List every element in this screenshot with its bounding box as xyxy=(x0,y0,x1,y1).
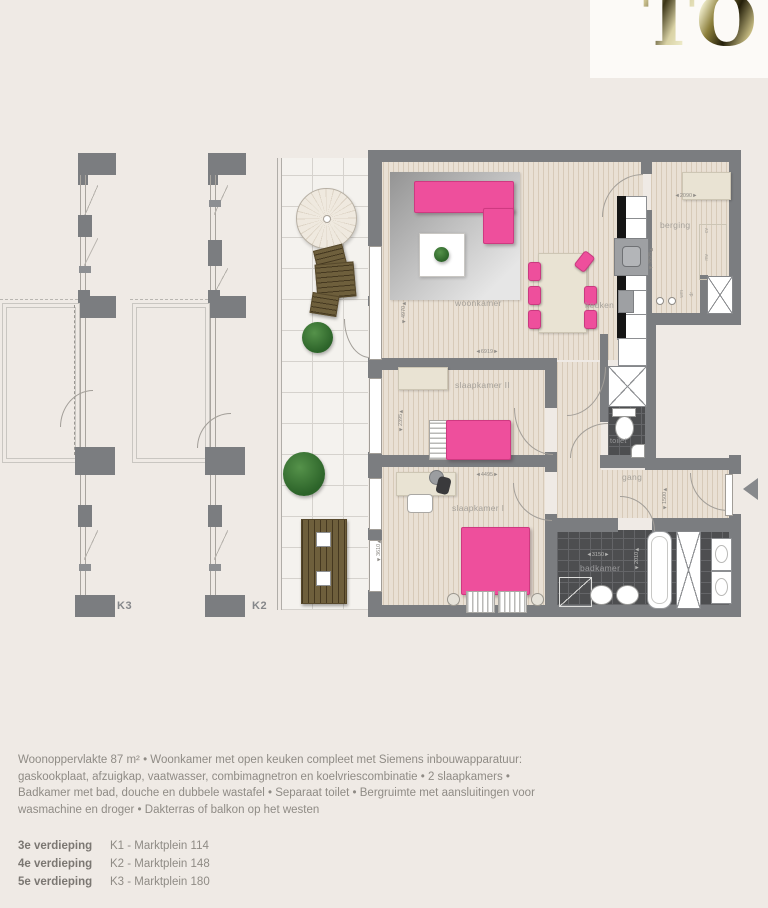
wall-vertical-a xyxy=(545,358,557,408)
logo-panel: TO xyxy=(590,0,768,78)
bathroom-cabinet xyxy=(676,531,701,609)
wall-right-mid-a xyxy=(729,455,741,474)
terrace-chair xyxy=(310,292,340,317)
k2-mid-wall-b xyxy=(220,296,246,318)
wall-left-a xyxy=(368,150,382,246)
dim-slaapkamer2-h: 2395 xyxy=(398,400,404,440)
k3-window-tick xyxy=(79,266,91,273)
k2-window-sill xyxy=(208,505,222,527)
k3-label: K3 xyxy=(117,600,132,612)
dining-chair xyxy=(528,310,541,329)
k3-window-flag xyxy=(84,238,98,266)
dim-slaapkamer1-w: 4495 xyxy=(462,472,512,478)
toilet-column-cabinet xyxy=(618,338,647,366)
k3-terrace-outline xyxy=(2,303,80,463)
k2-dashed-line-top xyxy=(130,299,208,302)
wall-top xyxy=(368,150,741,162)
berging-shaft xyxy=(707,276,733,314)
bathtub-inner xyxy=(651,536,668,604)
dim-berging-w: 2090 xyxy=(666,193,706,199)
dining-chair xyxy=(584,310,597,329)
wall-left-d xyxy=(368,590,382,617)
slaapkamer1-label: slaapkamer I xyxy=(452,503,504,513)
dim-gang-w: 1500 xyxy=(662,480,668,516)
vanity-bowl xyxy=(715,545,728,563)
nightstand xyxy=(531,593,544,606)
wall-left-b xyxy=(368,358,382,378)
k3-window-sill xyxy=(78,505,92,527)
floor-label: 3e verdieping xyxy=(18,840,110,852)
cv-label: cv xyxy=(704,228,710,233)
window-slaapkamer1-a xyxy=(369,478,382,530)
dining-chair xyxy=(528,262,541,281)
shower xyxy=(559,577,592,607)
wall-gang-north xyxy=(645,458,741,470)
k2-bottom-corner-wall xyxy=(205,595,245,617)
washbasin xyxy=(590,585,613,605)
slaapkamer2-label: slaapkamer II xyxy=(455,380,510,390)
vanity-bowl xyxy=(715,578,728,596)
bed1-pillow xyxy=(466,591,495,613)
k3-window-flag xyxy=(84,530,98,560)
k3-window-tick xyxy=(79,564,91,571)
dim-woonkamer-w: 6919 xyxy=(462,349,512,355)
floor-unit: K2 - Marktplein 148 xyxy=(110,858,210,870)
bench-tray xyxy=(316,571,331,586)
dr-label: dr xyxy=(689,292,695,296)
k3-window-sill xyxy=(78,215,92,237)
dim-badkamer-w: 3150 xyxy=(578,552,618,558)
floor-row: 4e verdiepingK2 - Marktplein 148 xyxy=(18,858,210,870)
entry-door-leaf xyxy=(725,474,733,516)
floor-row: 5e verdiepingK3 - Marktplein 180 xyxy=(18,876,210,888)
table-plant xyxy=(434,247,449,262)
stool xyxy=(407,494,433,513)
wall-berging-bottom xyxy=(648,313,741,325)
kitchen-sink xyxy=(622,246,641,267)
toilet-bowl xyxy=(615,416,634,440)
wall-vertical-c xyxy=(545,514,557,605)
woonkamer-label: woonkamer xyxy=(455,298,502,308)
mv-label: mv xyxy=(704,254,710,261)
dining-chair xyxy=(528,286,541,305)
wall-left-c xyxy=(368,452,382,478)
wasmachine-connection xyxy=(656,297,664,305)
floor-unit: K1 - Marktplein 114 xyxy=(110,840,209,852)
k3-lower-corner-wall xyxy=(75,447,115,475)
floor-row: 3e verdiepingK1 - Marktplein 114 xyxy=(18,840,209,852)
window-woonkamer xyxy=(369,246,382,360)
k2-window-sill xyxy=(208,240,222,266)
k2-top-corner-wall xyxy=(208,153,246,175)
nightstand xyxy=(447,593,460,606)
badkamer-label: badkamer xyxy=(580,563,620,573)
dim-badkamer-h: 2010 xyxy=(634,540,640,576)
bed1 xyxy=(461,527,530,595)
k2-window-tick xyxy=(209,564,221,571)
plant-bush xyxy=(283,452,325,496)
dim-slaapkamer1-h: 3610 xyxy=(376,528,382,572)
bench-tray xyxy=(316,532,331,547)
washbasin xyxy=(616,585,639,605)
k3-window-flag xyxy=(84,185,98,217)
k2-window-flag xyxy=(214,530,228,560)
floor-unit: K3 - Marktplein 180 xyxy=(110,876,210,888)
k3-mid-wall-b xyxy=(90,296,116,318)
parasol-pole xyxy=(323,215,331,223)
k2-label: K2 xyxy=(252,600,267,612)
floor-label: 4e verdieping xyxy=(18,858,110,870)
terrace-railing xyxy=(277,158,282,610)
k2-window-tick xyxy=(209,200,221,207)
entrance-arrow-icon xyxy=(743,478,758,500)
floor-label: 5e verdieping xyxy=(18,876,110,888)
toilet-shaft xyxy=(608,366,647,407)
keuken-label: keuken xyxy=(585,300,614,310)
k3-bottom-corner-wall xyxy=(75,595,115,617)
brochure-page: TO K3 xyxy=(0,0,768,908)
toilet-basin xyxy=(631,444,645,458)
berging-label: berging xyxy=(660,220,690,230)
k3-dashed-line xyxy=(74,305,77,455)
k3-dashed-line-top xyxy=(0,299,78,302)
wall-badkamer-top-b xyxy=(652,518,741,532)
wall-badkamer-top-a xyxy=(557,518,618,532)
sofa-side xyxy=(483,208,514,244)
wall-vertical-b xyxy=(545,452,557,472)
kitchen-appliance xyxy=(618,290,634,313)
wm-label: wm xyxy=(679,290,685,298)
logo-text: TO xyxy=(643,0,758,56)
plant-bush xyxy=(302,322,333,353)
toilet-label: toilet xyxy=(610,438,627,445)
k3-top-corner-wall xyxy=(78,153,116,175)
window-slaapkamer2 xyxy=(369,378,382,454)
dim-berging-h: 3525 xyxy=(648,238,654,278)
wall-keuken-a xyxy=(641,162,652,174)
description-paragraph: Woonoppervlakte 87 m² • Woonkamer met op… xyxy=(18,752,563,818)
dim-woonkamer-h: 4970 xyxy=(401,290,407,334)
droger-connection xyxy=(668,297,676,305)
wardrobe xyxy=(398,367,448,390)
bed2 xyxy=(446,420,511,460)
k2-lower-corner-wall xyxy=(205,447,245,475)
bed1-pillow xyxy=(498,591,527,613)
gang-label: gang xyxy=(622,472,642,482)
